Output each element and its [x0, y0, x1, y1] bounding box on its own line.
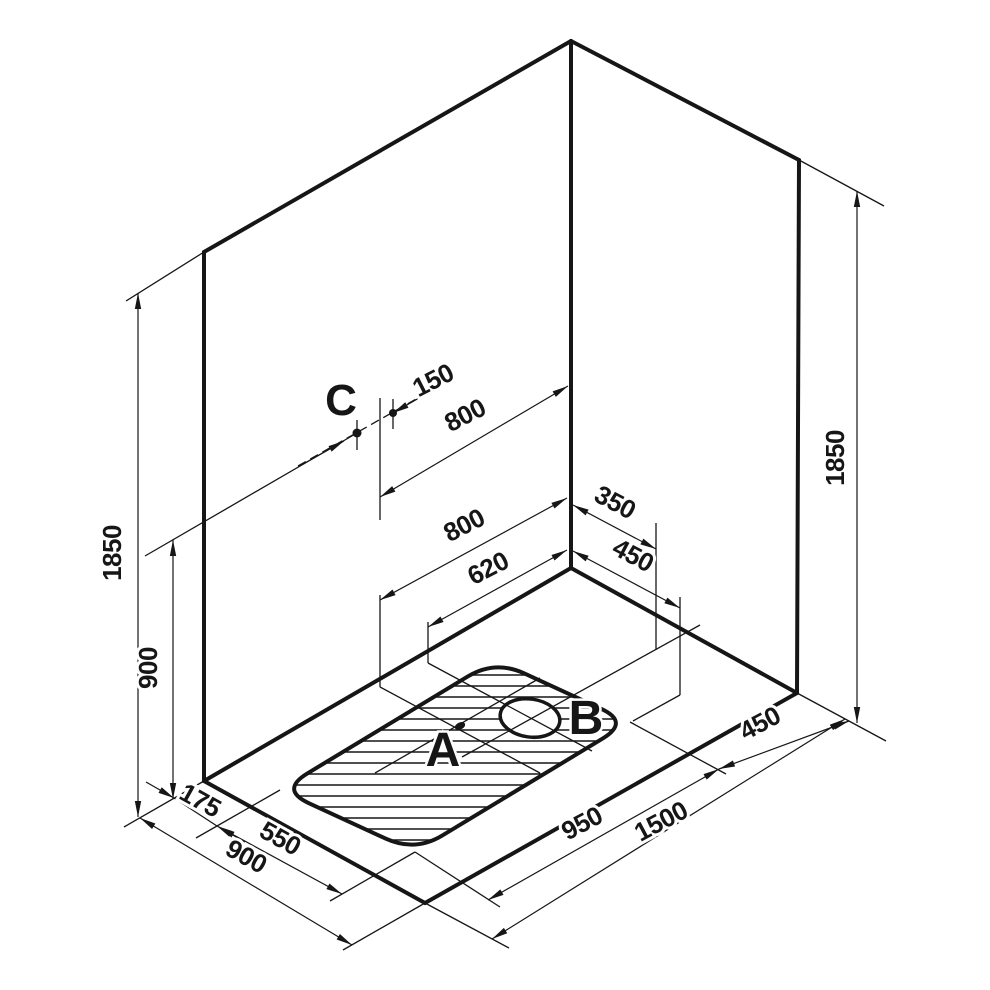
dim-a-from-corner-label: 800	[438, 502, 489, 548]
ext-floor-front-corner-left	[343, 903, 425, 950]
dim-floor-margin-left-label: 175	[175, 777, 226, 824]
dim-wall-height-left-label: 1850	[97, 525, 127, 581]
dim-tray-right-offset-label: 450	[608, 532, 659, 578]
point-labels: A B C	[325, 376, 603, 777]
point-b-label: B	[569, 692, 604, 745]
point-c-label: C	[325, 376, 357, 425]
ext-wall-top-right	[799, 160, 884, 206]
right-wall-floor-junction	[571, 568, 797, 693]
dim-tray-margin-right-label: 450	[734, 700, 785, 746]
dim-c-height-label: 900	[133, 647, 163, 689]
construction-tray-corner	[633, 695, 680, 721]
point-c-offset-marker	[389, 409, 397, 417]
leader-arrow-point-c	[305, 441, 344, 463]
ext-floor-right-corner	[797, 693, 886, 741]
point-a-label: A	[426, 724, 461, 777]
dim-arrow-175-outer	[146, 782, 174, 798]
dim-tray-length-label: 950	[556, 800, 607, 846]
left-wall-top-edge	[204, 41, 571, 252]
centerline-point-c	[298, 390, 432, 466]
ext-tray-bottom-corner-right	[415, 852, 500, 907]
dim-wall-height-right-label: 1850	[820, 430, 850, 486]
ext-tray-right-corner	[630, 722, 726, 774]
dimension-labels: 1850 900 1850 150 800 800 620 350 450 17…	[97, 357, 850, 879]
isometric-installation-drawing: 1850 900 1850 150 800 800 620 350 450 17…	[0, 0, 990, 990]
ext-floor-front-corner-right	[425, 903, 509, 948]
dim-c-offset-label: 150	[407, 357, 458, 403]
dim-c-from-corner-label: 800	[439, 392, 490, 438]
right-wall-top-edge	[571, 41, 799, 160]
construction-lines	[124, 160, 886, 950]
right-wall-right-edge	[797, 160, 799, 693]
point-c-marker	[353, 429, 362, 438]
